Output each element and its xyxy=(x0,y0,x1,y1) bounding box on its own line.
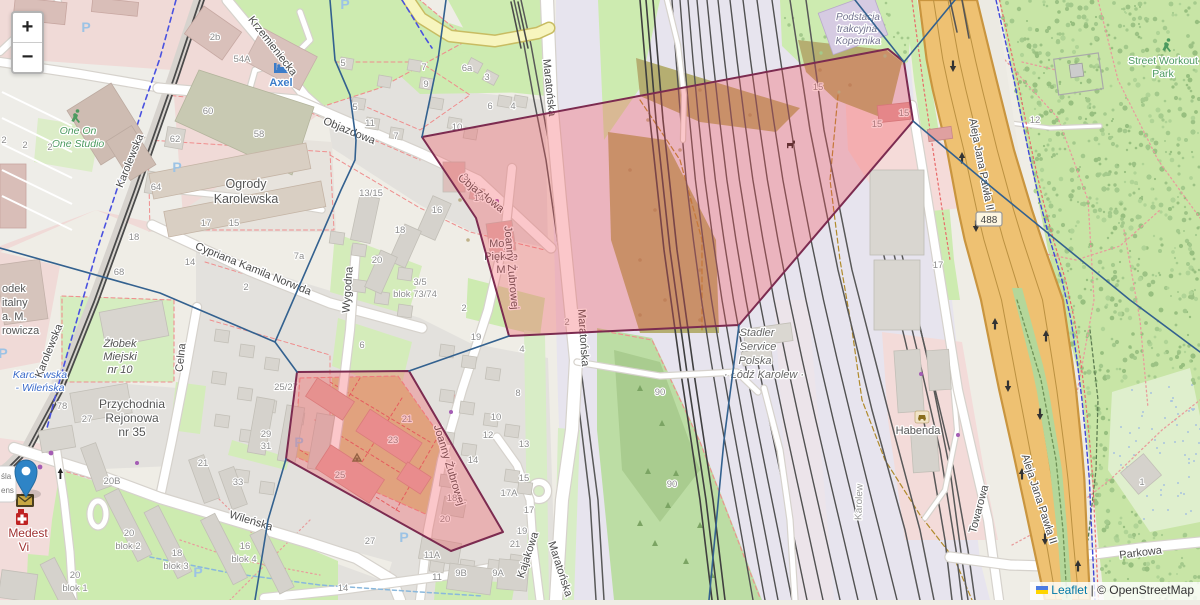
svg-text:19: 19 xyxy=(517,526,528,537)
svg-text:blok 1: blok 1 xyxy=(62,583,87,594)
svg-text:90: 90 xyxy=(667,479,678,490)
svg-text:8: 8 xyxy=(515,388,520,399)
svg-text:blok 2: blok 2 xyxy=(115,541,140,552)
svg-text:13: 13 xyxy=(519,439,530,450)
svg-text:27: 27 xyxy=(82,414,93,425)
svg-text:21: 21 xyxy=(510,539,521,550)
svg-text:20: 20 xyxy=(124,528,135,539)
svg-text:6: 6 xyxy=(359,340,364,351)
svg-text:18: 18 xyxy=(395,225,406,236)
svg-text:P: P xyxy=(193,564,202,580)
svg-text:odek: odek xyxy=(2,283,26,295)
svg-text:- Wileńska: - Wileńska xyxy=(16,382,65,394)
svg-text:18: 18 xyxy=(129,232,140,243)
svg-text:11: 11 xyxy=(365,118,375,129)
svg-text:9B: 9B xyxy=(455,568,467,579)
svg-text:blok 4: blok 4 xyxy=(231,554,256,565)
svg-text:90: 90 xyxy=(655,387,666,398)
svg-text:P: P xyxy=(81,19,90,35)
svg-text:31: 31 xyxy=(261,441,272,452)
svg-text:Park: Park xyxy=(1152,68,1174,80)
svg-text:Rejonowa: Rejonowa xyxy=(105,411,159,425)
svg-text:4: 4 xyxy=(510,101,515,112)
svg-text:trakcyjna: trakcyjna xyxy=(837,24,877,35)
svg-text:3: 3 xyxy=(484,72,489,83)
svg-text:29: 29 xyxy=(261,429,272,440)
svg-text:P: P xyxy=(399,529,408,545)
svg-text:Medest: Medest xyxy=(8,526,48,540)
svg-text:a. M.: a. M. xyxy=(2,311,26,323)
svg-text:54A: 54A xyxy=(234,54,252,65)
svg-text:Podstacja: Podstacja xyxy=(836,12,880,23)
svg-text:12: 12 xyxy=(1030,115,1041,126)
svg-text:italny: italny xyxy=(2,297,28,309)
svg-text:Vi: Vi xyxy=(19,540,29,554)
svg-text:Habenda: Habenda xyxy=(896,425,942,437)
svg-text:nr 10: nr 10 xyxy=(107,364,133,376)
svg-text:62: 62 xyxy=(170,134,181,145)
svg-text:17A: 17A xyxy=(501,488,519,499)
svg-text:14: 14 xyxy=(468,455,479,466)
svg-text:12: 12 xyxy=(483,430,494,441)
svg-text:One Studio: One Studio xyxy=(52,138,105,150)
svg-text:58: 58 xyxy=(254,129,265,140)
svg-text:· Łódź Karolew ·: · Łódź Karolew · xyxy=(724,369,804,381)
svg-text:20B: 20B xyxy=(104,476,121,487)
svg-text:60: 60 xyxy=(203,106,214,117)
svg-text:śla: śla xyxy=(1,472,12,481)
svg-text:13/15: 13/15 xyxy=(359,188,383,199)
svg-text:4: 4 xyxy=(519,344,524,355)
svg-text:2: 2 xyxy=(461,303,466,314)
svg-text:Kopernika: Kopernika xyxy=(835,36,880,47)
svg-text:11A: 11A xyxy=(424,550,441,561)
svg-text:33: 33 xyxy=(233,477,244,488)
svg-text:9A: 9A xyxy=(492,568,504,579)
svg-text:P: P xyxy=(172,159,181,175)
svg-text:7: 7 xyxy=(393,131,398,142)
svg-text:5: 5 xyxy=(352,102,357,113)
svg-text:2: 2 xyxy=(243,282,248,293)
svg-text:Axel: Axel xyxy=(269,77,292,89)
svg-text:11: 11 xyxy=(432,572,442,583)
svg-text:Polska: Polska xyxy=(738,355,771,367)
svg-text:Miejski: Miejski xyxy=(103,351,137,363)
svg-text:2b: 2b xyxy=(210,32,221,43)
svg-text:6: 6 xyxy=(487,101,492,112)
svg-text:2: 2 xyxy=(22,140,27,151)
svg-text:27: 27 xyxy=(365,536,376,547)
svg-text:15: 15 xyxy=(229,218,240,229)
svg-text:2: 2 xyxy=(47,142,52,153)
svg-text:6a: 6a xyxy=(462,63,473,74)
svg-text:Karolewska: Karolewska xyxy=(214,192,279,206)
svg-text:Żłobek: Żłobek xyxy=(102,338,137,350)
svg-text:P: P xyxy=(0,345,8,361)
svg-text:Przychodnia: Przychodnia xyxy=(99,397,165,411)
svg-text:Stadler: Stadler xyxy=(740,327,776,339)
svg-text:P: P xyxy=(340,0,349,12)
svg-text:16: 16 xyxy=(240,541,251,552)
svg-text:18: 18 xyxy=(172,548,183,559)
svg-text:20: 20 xyxy=(70,570,81,581)
svg-text:Ogrody: Ogrody xyxy=(226,177,268,191)
svg-text:7a: 7a xyxy=(294,251,305,262)
svg-text:Service: Service xyxy=(740,341,777,353)
svg-text:nr 35: nr 35 xyxy=(118,425,146,439)
svg-text:17: 17 xyxy=(201,218,212,229)
svg-text:3/5: 3/5 xyxy=(413,277,426,288)
svg-text:Street Workout: Street Workout xyxy=(1128,55,1198,67)
svg-text:488: 488 xyxy=(981,215,998,226)
svg-text:15: 15 xyxy=(519,473,530,484)
svg-text:20: 20 xyxy=(372,255,383,266)
svg-text:2: 2 xyxy=(1,135,6,146)
svg-text:17: 17 xyxy=(524,505,535,516)
svg-text:rowicza: rowicza xyxy=(2,325,40,337)
svg-text:1: 1 xyxy=(1139,477,1144,488)
svg-text:5: 5 xyxy=(340,58,345,69)
svg-text:78: 78 xyxy=(57,401,68,412)
svg-text:blok 3: blok 3 xyxy=(163,561,188,572)
svg-text:68: 68 xyxy=(114,267,125,278)
svg-text:7: 7 xyxy=(421,62,426,73)
svg-text:21: 21 xyxy=(198,458,209,469)
svg-text:blok 73/74: blok 73/74 xyxy=(393,289,437,300)
svg-text:16: 16 xyxy=(432,205,443,216)
svg-text:One On: One On xyxy=(60,125,97,137)
svg-text:ens: ens xyxy=(1,486,14,495)
svg-text:17: 17 xyxy=(933,260,944,271)
svg-text:64: 64 xyxy=(151,182,162,193)
svg-text:14: 14 xyxy=(185,257,196,268)
svg-text:9: 9 xyxy=(423,79,428,90)
svg-text:Karolew: Karolew xyxy=(853,483,865,520)
svg-text:10: 10 xyxy=(491,412,502,423)
svg-text:19: 19 xyxy=(471,332,482,343)
svg-text:14: 14 xyxy=(338,583,349,594)
